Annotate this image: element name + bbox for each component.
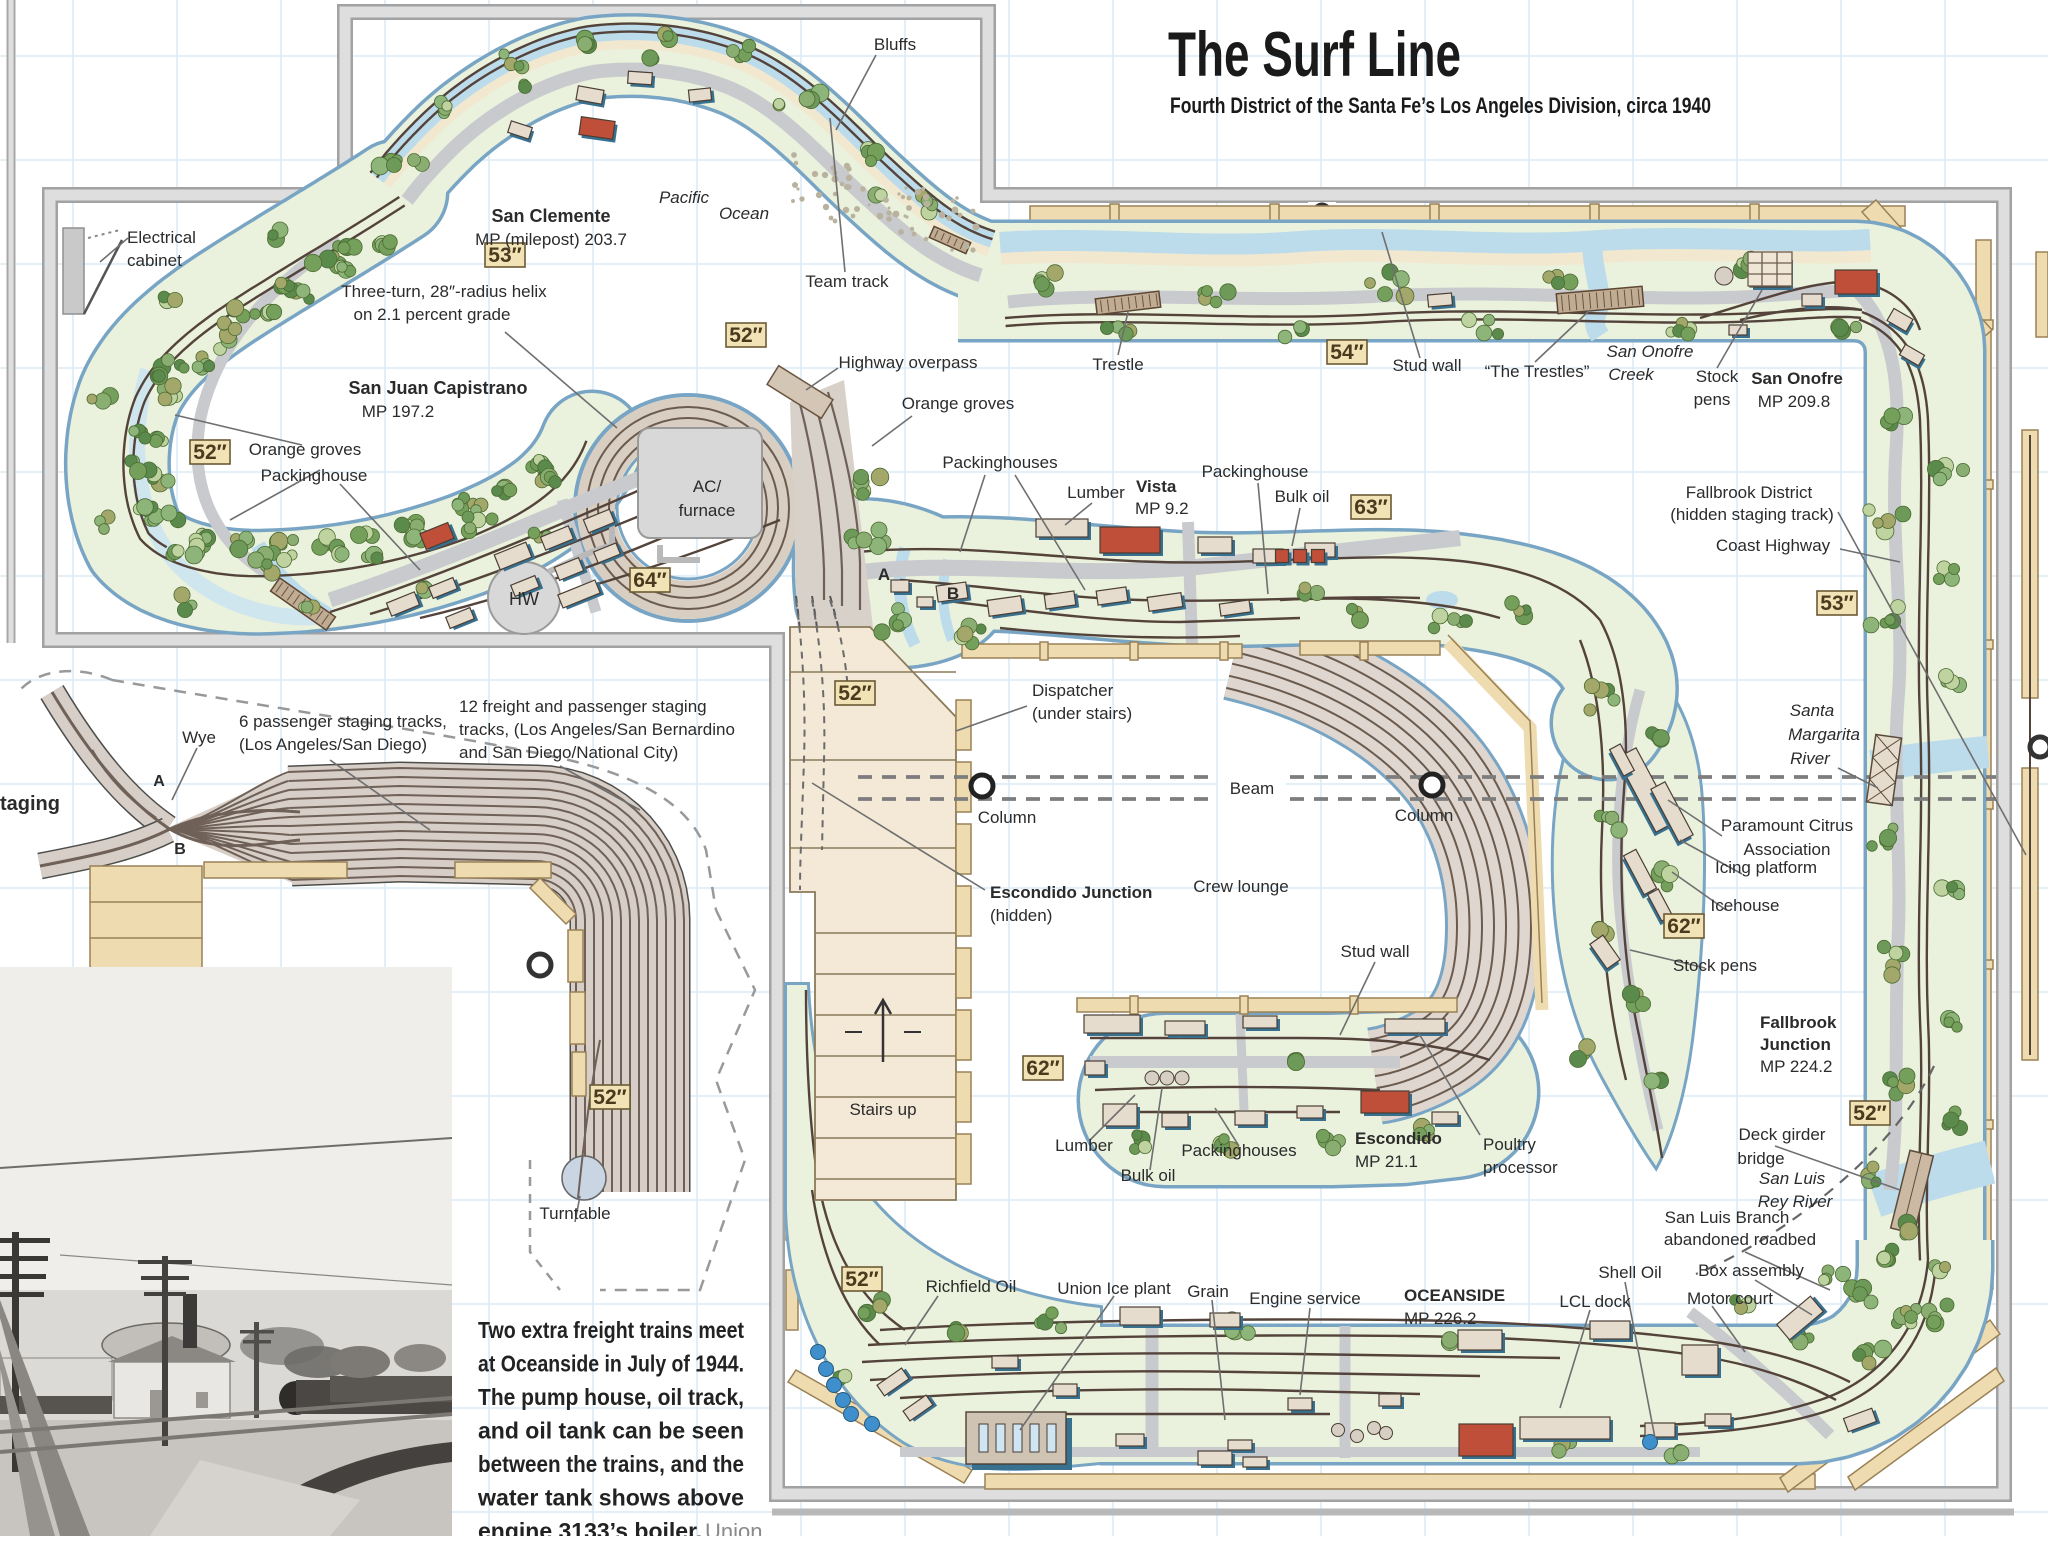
- svg-text:Turntable: Turntable: [539, 1204, 610, 1223]
- svg-text:Escondido: Escondido: [1355, 1129, 1442, 1148]
- svg-text:53″: 53″: [1820, 592, 1853, 615]
- svg-text:6 passenger staging tracks,: 6 passenger staging tracks,: [239, 712, 447, 731]
- svg-text:63″: 63″: [1354, 496, 1387, 519]
- svg-text:Icehouse: Icehouse: [1711, 896, 1780, 915]
- svg-text:taging: taging: [0, 793, 60, 815]
- svg-text:62″: 62″: [1026, 1057, 1059, 1080]
- svg-text:Orange groves: Orange groves: [249, 440, 361, 459]
- svg-text:San Onofre: San Onofre: [1751, 369, 1843, 388]
- svg-text:Ocean: Ocean: [719, 204, 769, 223]
- svg-text:(hidden staging track): (hidden staging track): [1670, 505, 1833, 524]
- svg-text:Trestle: Trestle: [1092, 355, 1143, 374]
- svg-text:and San Diego/National City): and San Diego/National City): [459, 743, 678, 762]
- svg-text:between the trains, and the: between the trains, and the: [478, 1451, 744, 1477]
- svg-text:(under stairs): (under stairs): [1032, 704, 1132, 723]
- svg-text:at Oceanside in July of 1944.: at Oceanside in July of 1944.: [478, 1351, 744, 1377]
- svg-text:Packinghouses: Packinghouses: [1181, 1141, 1296, 1160]
- svg-text:furnace: furnace: [679, 501, 736, 520]
- svg-text:Team track: Team track: [805, 272, 889, 291]
- svg-text:water tank shows above: water tank shows above: [477, 1485, 744, 1511]
- svg-text:Santa: Santa: [1790, 701, 1834, 720]
- svg-text:62″: 62″: [1667, 915, 1700, 938]
- svg-text:Deck girder: Deck girder: [1739, 1125, 1826, 1144]
- svg-text:tracks, (Los Angeles/San Berna: tracks, (Los Angeles/San Bernardino: [459, 720, 735, 739]
- svg-text:Wye: Wye: [182, 728, 216, 747]
- svg-text:bridge: bridge: [1737, 1149, 1784, 1168]
- svg-text:Packinghouse: Packinghouse: [261, 466, 368, 485]
- svg-text:Engine service: Engine service: [1249, 1289, 1361, 1308]
- svg-text:Bulk oil: Bulk oil: [1121, 1166, 1176, 1185]
- svg-text:LCL dock: LCL dock: [1559, 1292, 1631, 1311]
- svg-text:AC/: AC/: [693, 477, 722, 496]
- svg-text:Crew lounge: Crew lounge: [1193, 877, 1288, 896]
- svg-text:Union Ice plant: Union Ice plant: [1057, 1279, 1171, 1298]
- svg-text:Lumber: Lumber: [1055, 1136, 1113, 1155]
- svg-text:52″: 52″: [1853, 1102, 1886, 1125]
- svg-text:OCEANSIDE: OCEANSIDE: [1404, 1286, 1505, 1305]
- svg-text:MP 209.8: MP 209.8: [1758, 392, 1830, 411]
- svg-text:Bulk oil: Bulk oil: [1275, 487, 1330, 506]
- svg-text:and oil tank can be seen: and oil tank can be seen: [478, 1418, 744, 1444]
- svg-text:Stud wall: Stud wall: [1393, 356, 1462, 375]
- svg-text:Poultry: Poultry: [1483, 1135, 1536, 1154]
- svg-text:52″: 52″: [729, 324, 762, 347]
- svg-text:52″: 52″: [193, 441, 226, 464]
- svg-text:MP 21.1: MP 21.1: [1355, 1152, 1418, 1171]
- svg-text:Fallbrook District: Fallbrook District: [1686, 483, 1813, 502]
- svg-text:Orange groves: Orange groves: [902, 394, 1014, 413]
- svg-text:MP 224.2: MP 224.2: [1760, 1057, 1832, 1076]
- svg-text:Shell Oil: Shell Oil: [1598, 1263, 1661, 1282]
- svg-text:cabinet: cabinet: [127, 251, 182, 270]
- svg-text:San Onofre: San Onofre: [1607, 342, 1694, 361]
- svg-text:San Clemente: San Clemente: [491, 206, 610, 226]
- svg-text:processor: processor: [1483, 1158, 1558, 1177]
- svg-text:MP 226.2: MP 226.2: [1404, 1309, 1476, 1328]
- svg-text:Union: Union: [705, 1519, 762, 1536]
- svg-text:Box assembly: Box assembly: [1698, 1261, 1804, 1280]
- svg-text:Margarita: Margarita: [1788, 725, 1860, 744]
- svg-text:Stud wall: Stud wall: [1341, 942, 1410, 961]
- svg-text:Stock: Stock: [1696, 367, 1739, 386]
- svg-text:San Luis Branch: San Luis Branch: [1665, 1208, 1790, 1227]
- svg-text:Grain: Grain: [1187, 1282, 1229, 1301]
- svg-text:Pacific: Pacific: [659, 188, 710, 207]
- svg-text:Creek: Creek: [1608, 365, 1655, 384]
- svg-text:B: B: [947, 584, 959, 603]
- svg-text:64″: 64″: [633, 569, 666, 592]
- svg-text:Column: Column: [1395, 806, 1454, 825]
- svg-text:MP (milepost) 203.7: MP (milepost) 203.7: [475, 230, 627, 249]
- svg-text:(hidden): (hidden): [990, 906, 1052, 925]
- svg-text:Fourth District of the Santa F: Fourth District of the Santa Fe’s Los An…: [1170, 93, 1711, 118]
- svg-text:Packinghouse: Packinghouse: [1202, 462, 1309, 481]
- svg-text:A: A: [153, 773, 165, 790]
- svg-text:HW: HW: [509, 589, 539, 609]
- svg-text:Paramount Citrus: Paramount Citrus: [1721, 816, 1853, 835]
- svg-text:Vista: Vista: [1136, 477, 1177, 496]
- svg-text:Association: Association: [1744, 840, 1831, 859]
- svg-text:52″: 52″: [845, 1268, 878, 1291]
- svg-text:Motor court: Motor court: [1687, 1289, 1773, 1308]
- svg-text:B: B: [174, 841, 186, 858]
- svg-text:MP 9.2: MP 9.2: [1135, 499, 1189, 518]
- svg-text:on 2.1 percent grade: on 2.1 percent grade: [354, 305, 511, 324]
- svg-text:Bluffs: Bluffs: [874, 35, 916, 54]
- svg-text:San Juan Capistrano: San Juan Capistrano: [348, 378, 527, 398]
- svg-text:Two extra freight trains meet: Two extra freight trains meet: [478, 1317, 744, 1343]
- svg-text:(Los Angeles/San Diego): (Los Angeles/San Diego): [239, 735, 427, 754]
- svg-text:The pump house, oil track,: The pump house, oil track,: [478, 1384, 744, 1410]
- svg-text:52″: 52″: [593, 1086, 626, 1109]
- svg-text:Lumber: Lumber: [1067, 483, 1125, 502]
- svg-text:Highway overpass: Highway overpass: [839, 353, 978, 372]
- svg-text:abandoned roadbed: abandoned roadbed: [1664, 1230, 1816, 1249]
- svg-text:“The Trestles”: “The Trestles”: [1485, 362, 1590, 381]
- svg-text:Escondido Junction: Escondido Junction: [990, 883, 1152, 902]
- svg-text:Packinghouses: Packinghouses: [942, 453, 1057, 472]
- svg-text:Icing platform: Icing platform: [1715, 858, 1817, 877]
- svg-text:MP 197.2: MP 197.2: [362, 402, 434, 421]
- svg-text:Coast Highway: Coast Highway: [1716, 536, 1831, 555]
- svg-text:Richfield Oil: Richfield Oil: [926, 1277, 1017, 1296]
- svg-text:Stairs up: Stairs up: [849, 1100, 916, 1119]
- svg-text:Three-turn, 28″-radius helix: Three-turn, 28″-radius helix: [341, 282, 547, 301]
- svg-text:12 freight and passenger stagi: 12 freight and passenger staging: [459, 697, 707, 716]
- svg-text:River: River: [1790, 749, 1831, 768]
- svg-text:Dispatcher: Dispatcher: [1032, 681, 1114, 700]
- svg-text:54″: 54″: [1330, 341, 1363, 364]
- svg-text:Electrical: Electrical: [127, 228, 196, 247]
- svg-text:A: A: [878, 565, 890, 584]
- svg-text:San Luis: San Luis: [1759, 1169, 1826, 1188]
- svg-text:Stock pens: Stock pens: [1673, 956, 1757, 975]
- svg-text:Fallbrook: Fallbrook: [1760, 1013, 1837, 1032]
- svg-text:The Surf Line: The Surf Line: [1168, 20, 1461, 90]
- svg-text:engine 3133’s boiler.: engine 3133’s boiler.: [478, 1518, 702, 1536]
- svg-text:Column: Column: [978, 808, 1037, 827]
- svg-text:Junction: Junction: [1760, 1035, 1831, 1054]
- svg-text:52″: 52″: [838, 682, 871, 705]
- svg-text:pens: pens: [1694, 390, 1731, 409]
- svg-text:Beam: Beam: [1230, 779, 1274, 798]
